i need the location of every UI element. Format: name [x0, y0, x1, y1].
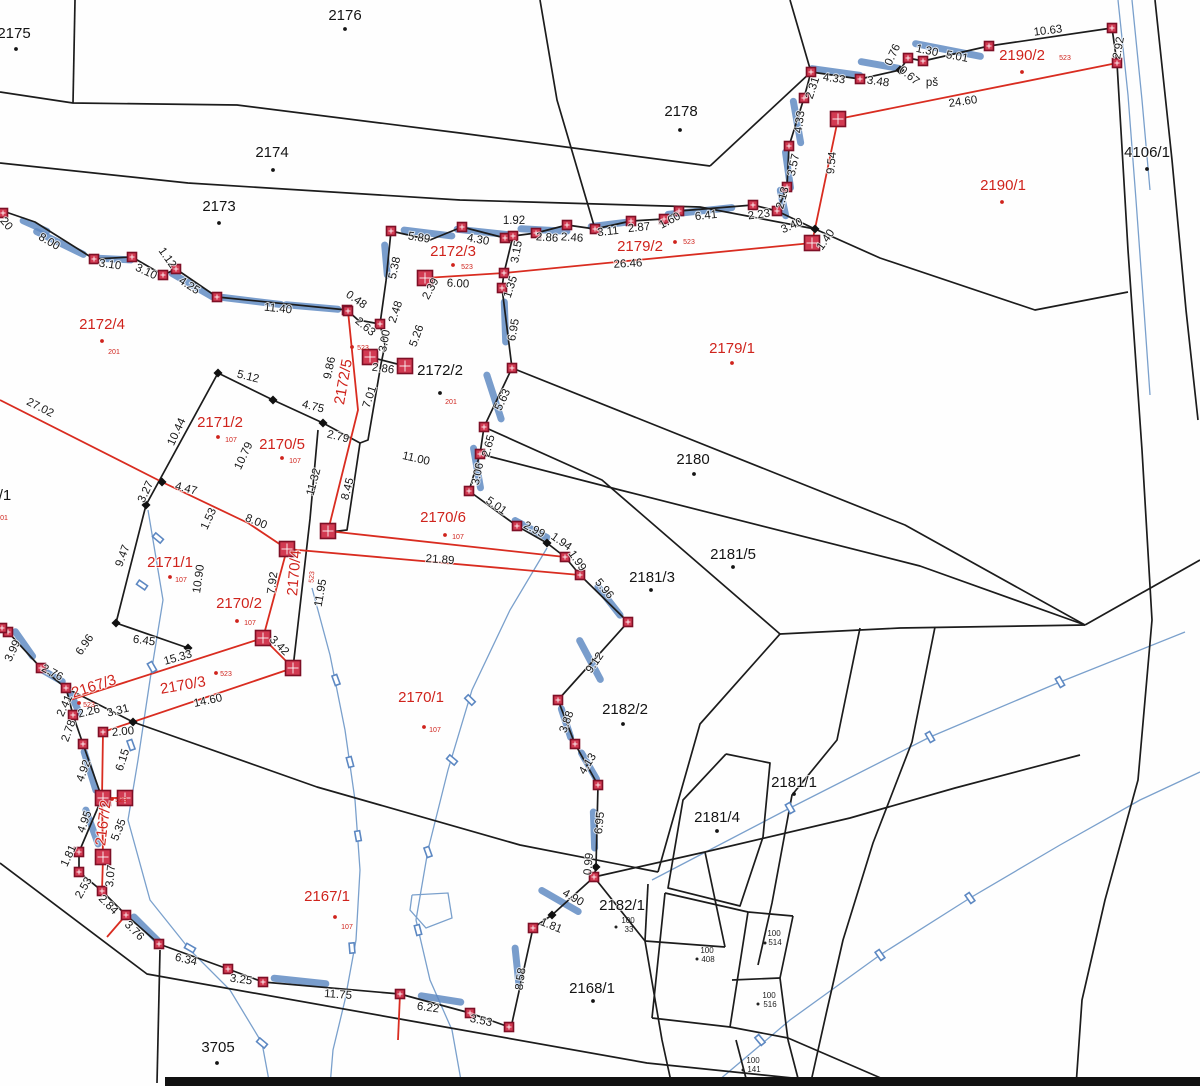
measurement-label: 0.76 [883, 42, 903, 67]
culvert-icon [965, 892, 975, 903]
survey-marker [856, 75, 865, 84]
survey-marker [465, 487, 474, 496]
parcel-centroid-dot [692, 472, 696, 476]
measurement-label: 2.79 [326, 429, 351, 446]
culvert-icon [147, 661, 156, 672]
culvert-icon [465, 695, 476, 706]
parcel-label: 2175 [0, 25, 31, 42]
boundary-line [788, 1038, 890, 1082]
measurement-label: 4.75 [301, 399, 326, 416]
small-parcel-label: 100 [700, 946, 714, 955]
measurement-label: 6.15 [114, 748, 132, 773]
parcel-centroid-dot [217, 221, 221, 225]
measurement-label: 6.41 [694, 209, 718, 223]
culvert-icon [925, 731, 934, 742]
survey-marker [500, 269, 509, 278]
parcel-centroid-dot [715, 829, 719, 833]
measurement-label: 3.10 [133, 262, 158, 282]
measurement-label: 6.22 [416, 1001, 440, 1016]
measurement-label: 2.46 [560, 231, 583, 245]
survey-marker [480, 423, 489, 432]
measurement-label: 24.60 [948, 94, 978, 110]
measurement-label: 2.87 [627, 221, 651, 235]
parcel-centroid-dot [100, 339, 104, 343]
parcel-label: 2170/6 [420, 509, 466, 526]
survey-markers-layer [0, 24, 1122, 1032]
culvert-icon [184, 943, 195, 952]
parcel-centroid-dot [77, 701, 81, 705]
measurement-label: 5.26 [408, 323, 427, 348]
red-boundary-line [812, 119, 838, 243]
parcel-quality-code: 201 [445, 399, 457, 406]
parcel-centroid-dot [731, 565, 735, 569]
measurement-label: 11.00 [401, 450, 431, 468]
parcel-label: 2172/3 [430, 243, 476, 260]
survey-marker [554, 696, 563, 705]
parcel-label: 2168/1 [569, 980, 615, 997]
parcel-centroid-dot [1000, 200, 1004, 204]
parcel-centroid-dot [214, 671, 218, 675]
parcel-quality-code: 107 [289, 458, 301, 465]
measurement-label: 3.48 [866, 75, 890, 90]
survey-marker [99, 728, 108, 737]
parcel-quality-code: 01 [0, 515, 8, 522]
parcel-quality-code: 523 [83, 702, 95, 709]
parcel-centroid-dot [271, 168, 275, 172]
measurement-label: 0.67 [897, 64, 922, 88]
measurement-label: 2.63 [353, 315, 378, 339]
boundary-line [480, 454, 1085, 625]
survey-marker [0, 624, 7, 633]
survey-marker-large [321, 524, 336, 539]
survey-marker-large [398, 359, 413, 374]
survey-marker [594, 781, 603, 790]
culvert-icon [1055, 676, 1064, 687]
survey-marker-large [286, 661, 301, 676]
survey-marker [919, 57, 928, 66]
culvert-icon [785, 802, 794, 813]
boundary-line [157, 950, 160, 1083]
survey-marker [513, 522, 522, 531]
parcel-centroid-dot [14, 47, 18, 51]
measurement-label: 1.92 [503, 215, 525, 227]
culvert-icon [136, 580, 147, 590]
measurement-label: 4.33 [793, 110, 808, 134]
boundary-line [1076, 28, 1152, 1086]
parcel-label: 2172/2 [417, 362, 463, 379]
parcel-quality-code: 107 [429, 727, 441, 734]
parcel-quality-code: 523 [220, 671, 232, 678]
measurement-label: 6.95 [593, 811, 607, 834]
boundary-line [73, 0, 75, 103]
junction-diamond-icon [157, 477, 166, 486]
boundary-line [1085, 560, 1200, 625]
parcel-label: 2181/4 [694, 809, 740, 826]
measurement-label: 5.01 [945, 49, 969, 65]
parcel-label: 4106/1 [1124, 144, 1170, 161]
boundary-line [815, 229, 1128, 310]
parcel-label: 2170/1 [398, 689, 444, 706]
culvert-icon [875, 949, 885, 960]
parcel-quality-code: 107 [244, 620, 256, 627]
boundary-line [0, 236, 628, 1027]
measurement-label: 5.63 [493, 387, 513, 412]
parcel-quality-code: 107 [225, 437, 237, 444]
culvert-icon [332, 674, 340, 685]
parcel-centroid-dot [649, 588, 653, 592]
measurement-label: 3.99 [3, 638, 23, 663]
boundary-line [1155, 0, 1198, 420]
parcel-quality-code: 523 [1059, 55, 1071, 62]
measurement-label: 4.25 [176, 275, 201, 297]
junction-diamond-icon [213, 368, 222, 377]
small-parcel-label: 100 [621, 916, 635, 925]
survey-marker [387, 227, 396, 236]
survey-marker [904, 54, 913, 63]
hedges-layer [15, 44, 980, 1002]
small-parcel-label: 141 [747, 1065, 761, 1074]
measurement-label: 26.46 [613, 257, 642, 270]
parcel-centroid-dot [110, 797, 114, 801]
survey-marker [159, 271, 168, 280]
measurement-label: 6.45 [132, 634, 156, 649]
small-parcel-label: 100 [762, 991, 776, 1000]
culvert-icon [127, 739, 135, 750]
survey-marker [213, 293, 222, 302]
measurement-label: 7.92 [266, 571, 281, 595]
parcel-centroid-dot [216, 435, 220, 439]
measurement-label: 2.86 [535, 231, 558, 245]
parcel-label: 2167/3 [69, 671, 118, 701]
parcel-label: 2179/2 [617, 238, 663, 255]
measurement-label: 6.95 [506, 318, 522, 342]
measurement-label: 6.96 [74, 632, 97, 657]
survey-marker [1108, 24, 1117, 33]
small-parcel-label: 100 [767, 929, 781, 938]
junction-diamond-icon [318, 418, 327, 427]
measurement-label: 2.48 [387, 300, 405, 325]
measurement-label: 3.53 [469, 1013, 493, 1029]
culvert-icon [414, 925, 421, 936]
small-parcel-dot [764, 942, 767, 945]
culvert-icon [447, 755, 458, 765]
parcel-quality-code: 107 [452, 534, 464, 541]
parcel-label: 2181/1 [771, 774, 817, 791]
parcel-centroid-dot [443, 533, 447, 537]
survey-marker [529, 924, 538, 933]
parcel-label: 2167/1 [304, 888, 350, 905]
measurement-label: 3.40 [779, 216, 804, 236]
parcel-centroid-dot [168, 575, 172, 579]
junction-diamond-icon [111, 618, 120, 627]
measurement-label: 3.07 [104, 864, 118, 887]
small-parcel-dot [757, 1003, 760, 1006]
parcel-centroid-dot [215, 1061, 219, 1065]
survey-marker [75, 868, 84, 877]
culverts-layer [127, 533, 1065, 1048]
parcel-label: 2180 [676, 451, 709, 468]
parcel-centroid-dot [451, 263, 455, 267]
parcel-quality-code: 523 [357, 345, 369, 352]
measurement-label: 1.53 [199, 506, 219, 531]
culvert-icon [349, 943, 355, 953]
parcel-centroid-dot [678, 128, 682, 132]
measurement-label: 20 [0, 215, 15, 233]
parcel-quality-code: 107 [175, 577, 187, 584]
measurement-label: 1.81 [538, 916, 563, 936]
parcel-label: 3705 [201, 1039, 234, 1056]
red-boundary-line [0, 400, 287, 549]
survey-marker [563, 221, 572, 230]
red-boundary-line [838, 63, 1117, 119]
small-parcel-dot [742, 1069, 745, 1072]
parcel-label: 2190/2 [999, 47, 1045, 64]
survey-marker [155, 940, 164, 949]
parcel-label: 2170/3 [159, 673, 207, 698]
survey-marker-large [96, 850, 111, 865]
measurement-label: 11.40 [263, 302, 292, 317]
survey-marker [458, 223, 467, 232]
parcel-label: 2173 [202, 198, 235, 215]
parcel-label: 2174 [255, 144, 288, 161]
small-parcel-dot [615, 926, 618, 929]
red-boundary-line [425, 273, 504, 278]
measurement-label: 3.00 [377, 329, 393, 353]
boundary-line [0, 210, 380, 324]
parcel-label: 2170/2 [216, 595, 262, 612]
survey-marker [624, 618, 633, 627]
boundary-line [0, 163, 815, 229]
survey-marker [259, 978, 268, 987]
parcel-label: 2182/2 [602, 701, 648, 718]
survey-marker [128, 253, 137, 262]
junction-diamond-icon [268, 395, 277, 404]
measurement-label: 2.78 [60, 718, 79, 743]
small-parcel-label: 514 [768, 938, 782, 947]
measurement-label: 4.47 [174, 480, 199, 497]
red-boundary-line [398, 994, 400, 1040]
survey-marker [376, 320, 385, 329]
small-parcel-label: 516 [763, 1000, 777, 1009]
measurement-label: 5.89 [407, 230, 431, 245]
parcel-centroid-dot [438, 391, 442, 395]
parcel-centroid-dot [621, 722, 625, 726]
measurement-label: 2.53 [73, 875, 95, 900]
parcel-centroid-dot [343, 27, 347, 31]
boundary-line [810, 627, 935, 1086]
parcel-quality-code: 523 [461, 264, 473, 271]
parcel-centroid-dot [591, 999, 595, 1003]
measurement-label: 21.89 [425, 553, 455, 567]
parcel-centroid-dot [730, 361, 734, 365]
boundary-line [540, 0, 595, 229]
measurement-label: 3.25 [229, 973, 253, 988]
boundary-line [594, 755, 1080, 877]
parcel-label: 2179/1 [709, 340, 755, 357]
survey-marker [508, 364, 517, 373]
parcel-label: 2171/1 [147, 554, 193, 571]
survey-marker [571, 740, 580, 749]
cadastral-map-svg[interactable]: 208.003.103.101.124.2511.400.482.635.382… [0, 0, 1200, 1086]
measurement-label: 8.45 [339, 477, 356, 502]
parcel-centroid-dot [350, 345, 354, 349]
small-parcel-label: 408 [701, 955, 715, 964]
parcel-centroid-dot [280, 456, 284, 460]
small-parcel-label: 100 [746, 1056, 760, 1065]
boundary-line [732, 978, 780, 980]
parcel-centroid-dot [235, 619, 239, 623]
survey-marker [749, 201, 758, 210]
parcel-label: 2178 [664, 103, 697, 120]
parcel-centroid-dot [1020, 70, 1024, 74]
measurement-label: 9.54 [825, 151, 839, 175]
boundary-line [705, 852, 725, 947]
measurement-label: 5.01 [483, 495, 508, 518]
measurement-label: 10.79 [233, 440, 256, 471]
measurement-label: 11.32 [305, 467, 324, 497]
measurement-label: 7.01 [361, 385, 379, 410]
culvert-icon [257, 1038, 268, 1048]
measurement-label: 4.33 [822, 72, 846, 87]
survey-marker [344, 307, 353, 316]
parcel-quality-code: 523 [115, 797, 127, 804]
parcel-centroid-dot [673, 240, 677, 244]
parcel-centroid-dot [1145, 167, 1149, 171]
measurement-label: 8.58 [514, 967, 529, 991]
measurement-label: 10.90 [191, 564, 207, 594]
parcel-label: 2182/1 [599, 897, 645, 914]
parcel-quality-code: 523 [308, 571, 316, 583]
parcel-centroid-dot [792, 792, 796, 796]
survey-marker [122, 911, 131, 920]
parcel-quality-code: 523 [683, 239, 695, 246]
junction-diamond-icon [810, 224, 819, 233]
parcel-label: 2181/5 [710, 546, 756, 563]
measurement-label: 3.10 [98, 258, 122, 273]
boundary-line [780, 916, 793, 1040]
boundary-line [652, 893, 665, 1018]
culvert-icon [424, 846, 432, 857]
measurement-label: 11.75 [324, 988, 353, 1002]
survey-marker [785, 142, 794, 151]
boundary-line [0, 92, 710, 166]
measurement-label: pš [926, 77, 938, 89]
parcel-centroid-dot [422, 725, 426, 729]
survey-marker [985, 42, 994, 51]
boundary-line [668, 754, 770, 906]
measurement-label: 8.00 [36, 231, 61, 253]
boundary-line [652, 1018, 788, 1038]
small-parcel-label: 33 [625, 925, 634, 934]
parcel-quality-code: 201 [108, 349, 120, 356]
culvert-icon [346, 757, 353, 768]
culvert-icon [153, 533, 164, 543]
parcel-centroid-dot [333, 915, 337, 919]
survey-marker [69, 711, 78, 720]
measurement-label: 2.00 [111, 725, 134, 739]
measurement-label: 3.11 [597, 225, 620, 239]
measurement-label: 9.47 [114, 543, 133, 568]
survey-marker [807, 68, 816, 77]
cadastral-map-canvas[interactable]: 208.003.103.101.124.2511.400.482.635.382… [0, 0, 1200, 1086]
measurement-label: 6.00 [447, 277, 470, 290]
measurement-label: 2.31 [804, 76, 822, 101]
parcel-label: 2171/2 [197, 414, 243, 431]
parcel-label: 2176 [328, 7, 361, 24]
parcel-label: /1 [0, 487, 11, 504]
measurement-label: 3.06 [470, 462, 486, 486]
survey-marker [90, 255, 99, 264]
survey-marker [505, 1023, 514, 1032]
measurement-label: 2.86 [371, 362, 395, 377]
culvert-icon [355, 831, 362, 842]
measurement-label: 14.60 [193, 692, 224, 710]
survey-marker [396, 990, 405, 999]
boundaries-layer [0, 0, 1200, 1086]
parcel-label: 2172/4 [79, 316, 125, 333]
measurement-label: 3.15 [509, 240, 525, 264]
measurement-label: 27.02 [24, 396, 55, 420]
parcel-label: 2190/1 [980, 177, 1026, 194]
boundary-line [780, 625, 1085, 634]
measurement-label: 3.31 [106, 703, 131, 720]
survey-marker [79, 740, 88, 749]
measurement-label: 0.99 [582, 852, 596, 875]
parcel-label: 2181/3 [629, 569, 675, 586]
stream-line [1132, 0, 1150, 190]
parcel-quality-code: 107 [341, 924, 353, 931]
boundary-line [730, 912, 748, 1027]
parcel-label: 2170/5 [259, 436, 305, 453]
map-frame-bar [165, 1077, 1200, 1086]
survey-marker-large [831, 112, 846, 127]
survey-marker [509, 232, 518, 241]
boundary-line [790, 0, 811, 72]
measurement-label: 1.94 [548, 531, 574, 554]
small-parcel-dot [696, 958, 699, 961]
measurement-label: 2.84 [96, 893, 121, 918]
culvert-icon [755, 1035, 765, 1046]
labels-layer: 208.003.103.101.124.2511.400.482.635.382… [0, 7, 1170, 1074]
boundary-line [645, 884, 648, 941]
